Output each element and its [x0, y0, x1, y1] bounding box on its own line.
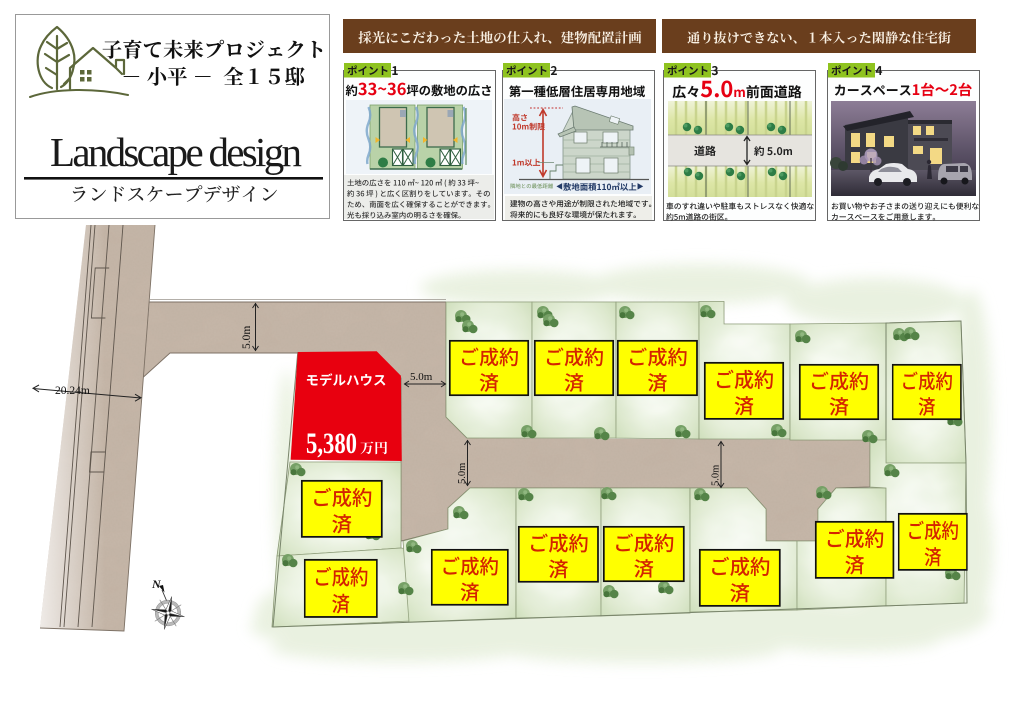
svg-text:5,380: 5,380 [306, 427, 357, 460]
svg-text:5.0m: 5.0m [711, 465, 722, 486]
svg-text:5.0m: 5.0m [457, 463, 468, 484]
svg-text:5.0m: 5.0m [410, 371, 433, 383]
svg-text:N: N [151, 577, 162, 591]
svg-text:20.24m: 20.24m [55, 385, 90, 397]
svg-text:Landscape design: Landscape design [50, 129, 302, 175]
svg-text:5.0m: 5.0m [241, 326, 253, 349]
